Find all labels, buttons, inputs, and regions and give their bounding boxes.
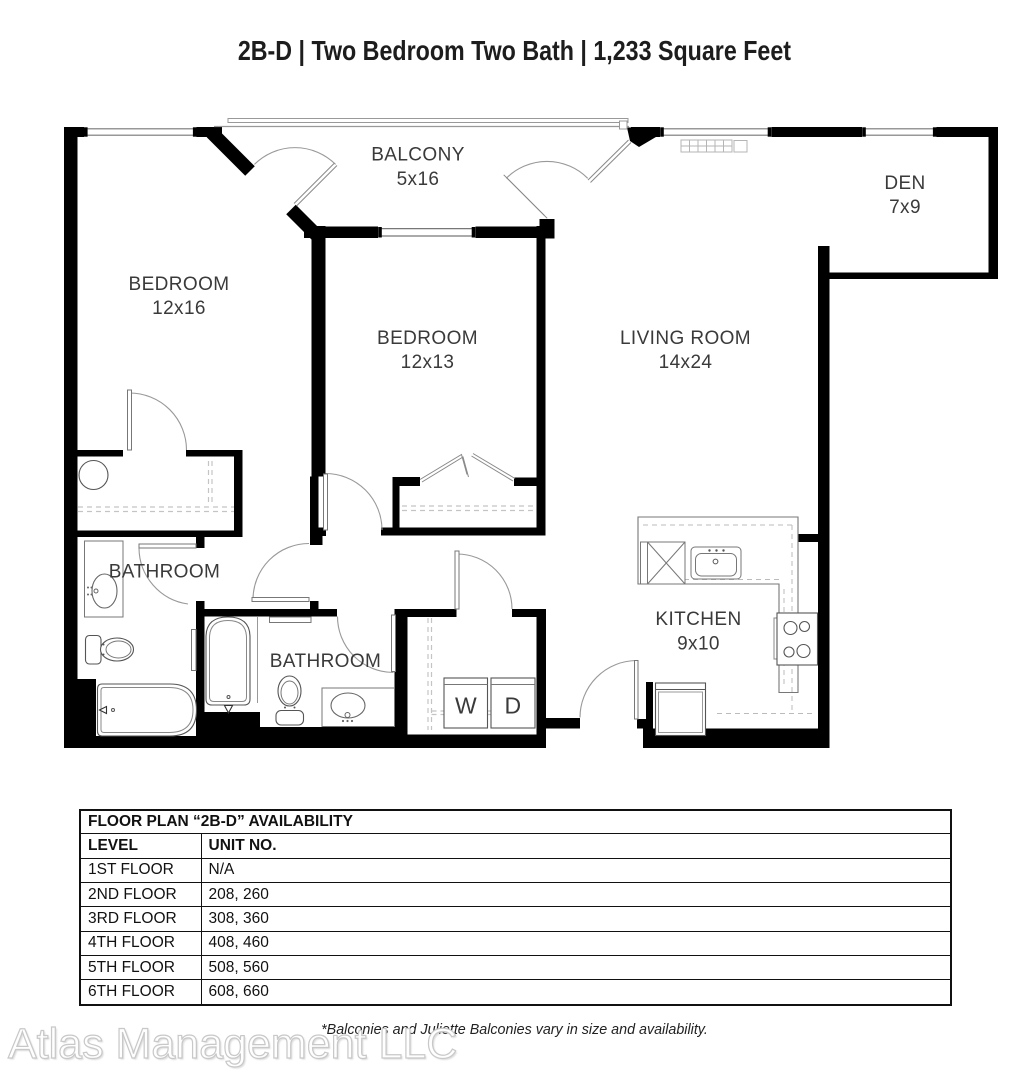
svg-text:LIVING ROOM: LIVING ROOM: [620, 328, 751, 349]
svg-text:5x16: 5x16: [397, 169, 440, 190]
svg-text:14x24: 14x24: [659, 352, 713, 373]
svg-text:D: D: [504, 693, 521, 719]
svg-text:7x9: 7x9: [889, 197, 921, 218]
svg-text:12x13: 12x13: [401, 352, 455, 373]
svg-text:DEN: DEN: [884, 173, 925, 194]
svg-text:BEDROOM: BEDROOM: [129, 274, 230, 295]
svg-text:BATHROOM: BATHROOM: [109, 562, 221, 583]
svg-text:9x10: 9x10: [677, 634, 720, 655]
svg-text:KITCHEN: KITCHEN: [655, 609, 741, 630]
svg-text:W: W: [455, 693, 477, 719]
svg-text:BATHROOM: BATHROOM: [270, 651, 382, 672]
svg-text:BALCONY: BALCONY: [371, 145, 465, 166]
svg-text:BEDROOM: BEDROOM: [377, 328, 478, 349]
svg-text:12x16: 12x16: [152, 298, 206, 319]
